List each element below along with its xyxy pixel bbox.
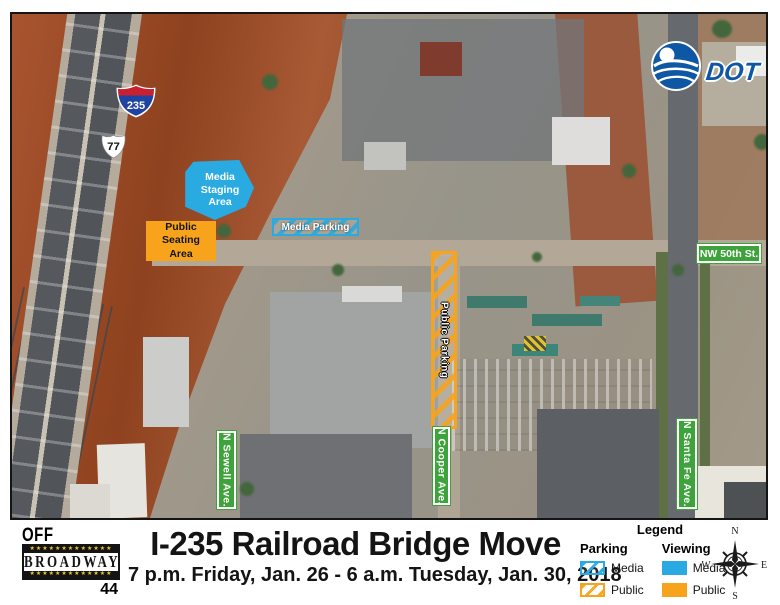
compass-rose-icon: N S E W: [702, 524, 768, 602]
parking-lot-bottom: [240, 434, 412, 518]
media-parking-swatch-icon: [580, 561, 605, 575]
us-77-shield-icon: 77: [100, 132, 127, 159]
storage-materials: [467, 296, 527, 308]
storage-materials: [580, 296, 620, 306]
interstate-235-shield-icon: 235: [116, 84, 156, 118]
media-parking-overlay: Media Parking: [272, 218, 359, 236]
tree: [262, 74, 278, 90]
public-parking-overlay: Public Parking: [431, 251, 457, 429]
building: [552, 117, 610, 165]
page-title: I-235 Railroad Bridge Move: [128, 526, 583, 562]
street-sign-label: N Cooper Ave.: [436, 427, 448, 505]
off-broadway-number: 44: [22, 581, 120, 599]
tree: [712, 20, 732, 38]
legend-item-label: Public: [611, 583, 644, 597]
public-seating-area-overlay: Public Seating Area: [146, 221, 216, 261]
building: [70, 484, 110, 518]
odot-logo-text: DOT: [704, 58, 760, 87]
parking-lot-top: [342, 19, 584, 161]
building: [537, 409, 659, 518]
legend-item: Public: [580, 583, 644, 597]
legend-parking-header: Parking: [580, 541, 644, 556]
tree: [532, 252, 542, 262]
storage-materials: [532, 314, 602, 326]
public-seating-area-label: Public Seating Area: [162, 221, 200, 260]
svg-text:S: S: [732, 591, 738, 602]
odot-logo: DOT: [650, 40, 768, 94]
tree: [622, 164, 636, 178]
building: [420, 42, 462, 76]
svg-text:E: E: [761, 560, 767, 571]
media-staging-area-label: Media Staging Area: [201, 171, 240, 209]
public-parking-label: Public Parking: [439, 302, 450, 378]
off-broadway-logo: OFF ★★★★★★★★★★★★★ BROADWAY ★★★★★★★★★★★★★…: [22, 524, 120, 599]
legend-item: Media: [580, 561, 644, 575]
tree: [754, 134, 768, 150]
street-sign-nw-50th: NW 50th St.: [697, 244, 761, 263]
off-broadway-name: BROADWAY: [24, 550, 118, 573]
media-parking-label: Media Parking: [282, 222, 350, 233]
off-broadway-marquee: ★★★★★★★★★★★★★ BROADWAY ★★★★★★★★★★★★★: [22, 544, 120, 580]
building: [143, 337, 189, 427]
street-sign-label: N Santa Fe Ave.: [681, 421, 693, 507]
svg-text:77: 77: [107, 141, 120, 153]
street-sign-sewell: N Sewell Ave.: [217, 431, 236, 509]
tree: [217, 224, 231, 238]
satellite-basemap: Media Staging Area Public Seating Area M…: [10, 12, 768, 520]
building: [270, 292, 435, 448]
tree: [332, 264, 344, 276]
title-block: I-235 Railroad Bridge Move 7 p.m. Friday…: [128, 526, 583, 587]
footer-bar: OFF ★★★★★★★★★★★★★ BROADWAY ★★★★★★★★★★★★★…: [0, 522, 780, 603]
tree: [240, 482, 254, 496]
off-broadway-off-text: OFF: [22, 524, 120, 546]
svg-text:N: N: [731, 526, 738, 537]
svg-text:235: 235: [127, 100, 145, 112]
svg-text:W: W: [702, 560, 711, 571]
tree: [672, 264, 684, 276]
legend-parking-column: Parking Media Public: [580, 541, 644, 605]
street-sign-label: NW 50th St.: [700, 248, 758, 260]
legend-item-label: Media: [611, 561, 644, 575]
page-subtitle: 7 p.m. Friday, Jan. 26 - 6 a.m. Tuesday,…: [128, 564, 583, 587]
legend-title: Legend: [625, 522, 695, 537]
street-sign-santa-fe: N Santa Fe Ave.: [677, 419, 697, 509]
building: [364, 142, 406, 170]
building: [724, 482, 768, 518]
storage-pallets: [524, 336, 546, 351]
building: [342, 286, 402, 302]
street-sign-cooper: N Cooper Ave.: [433, 427, 450, 505]
public-viewing-swatch-icon: [662, 583, 687, 597]
odot-globe-icon: [650, 40, 702, 92]
legend: Legend Parking Media Public Viewing Medi…: [570, 522, 710, 605]
public-parking-swatch-icon: [580, 583, 605, 597]
media-viewing-swatch-icon: [662, 561, 687, 575]
street-sign-label: N Sewell Ave.: [221, 433, 233, 507]
